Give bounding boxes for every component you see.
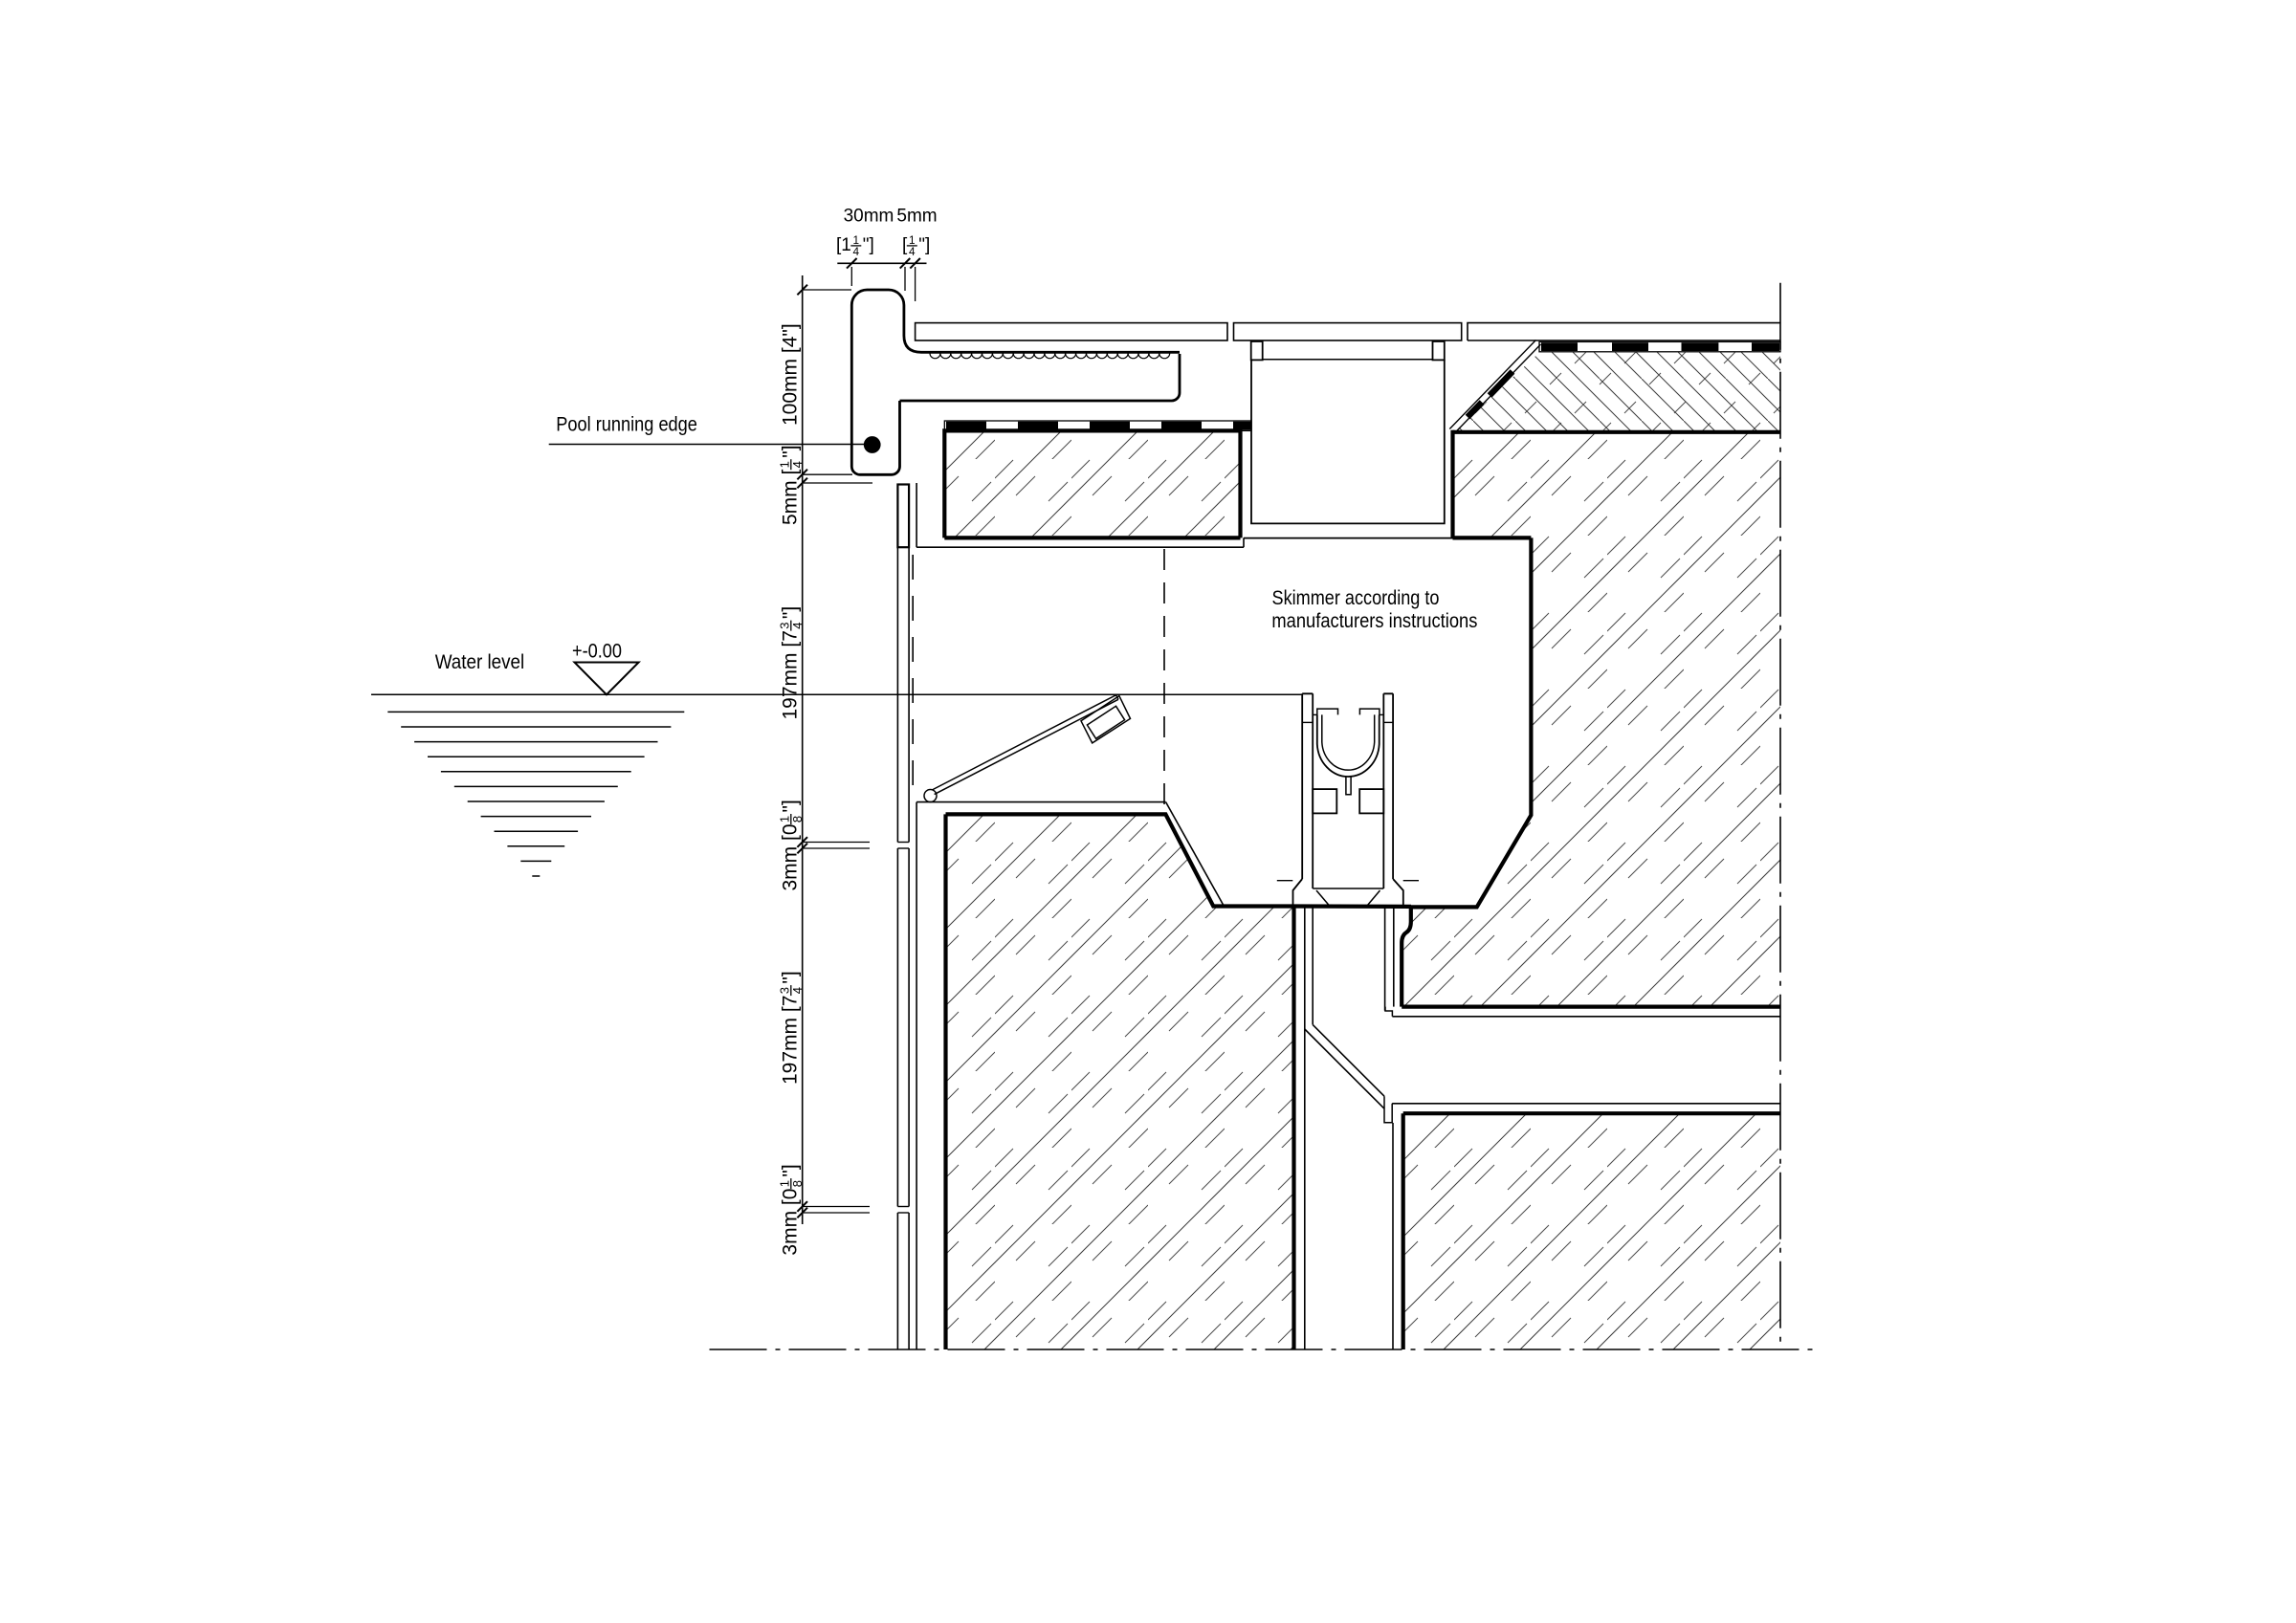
svg-text:5mm [: 5mm [: [780, 470, 802, 526]
svg-text:"]: "]: [863, 235, 874, 255]
svg-text:"]: "]: [780, 1164, 802, 1176]
svg-text:197mm [7: 197mm [7: [780, 996, 802, 1085]
svg-text:"]: "]: [918, 235, 930, 255]
svg-text:5mm: 5mm: [896, 207, 937, 227]
svg-text:+-0.00: +-0.00: [572, 641, 622, 663]
svg-text:100mm [4"]: 100mm [4"]: [780, 323, 802, 426]
svg-text:3mm [0: 3mm [0: [780, 1189, 802, 1256]
svg-text:Water level: Water level: [435, 651, 525, 673]
svg-text:"]: "]: [780, 445, 802, 457]
svg-text:manufacturers instructions: manufacturers instructions: [1271, 610, 1477, 632]
svg-text:30mm: 30mm: [844, 207, 894, 227]
svg-text:4: 4: [790, 622, 805, 628]
svg-text:4: 4: [790, 461, 805, 468]
svg-text:197mm [7: 197mm [7: [780, 630, 802, 719]
svg-text:"]: "]: [780, 606, 802, 619]
svg-text:Pool running edge: Pool running edge: [556, 414, 697, 436]
svg-text:"]: "]: [780, 971, 802, 983]
svg-text:[1: [1: [836, 235, 851, 255]
svg-text:4: 4: [790, 987, 805, 994]
svg-text:"]: "]: [780, 800, 802, 812]
svg-text:8: 8: [790, 816, 805, 822]
svg-text:Skimmer according to: Skimmer according to: [1272, 587, 1440, 609]
svg-text:8: 8: [790, 1180, 805, 1187]
svg-text:3mm [0: 3mm [0: [780, 823, 802, 890]
svg-text:4: 4: [909, 245, 916, 258]
svg-text:4: 4: [853, 245, 860, 258]
